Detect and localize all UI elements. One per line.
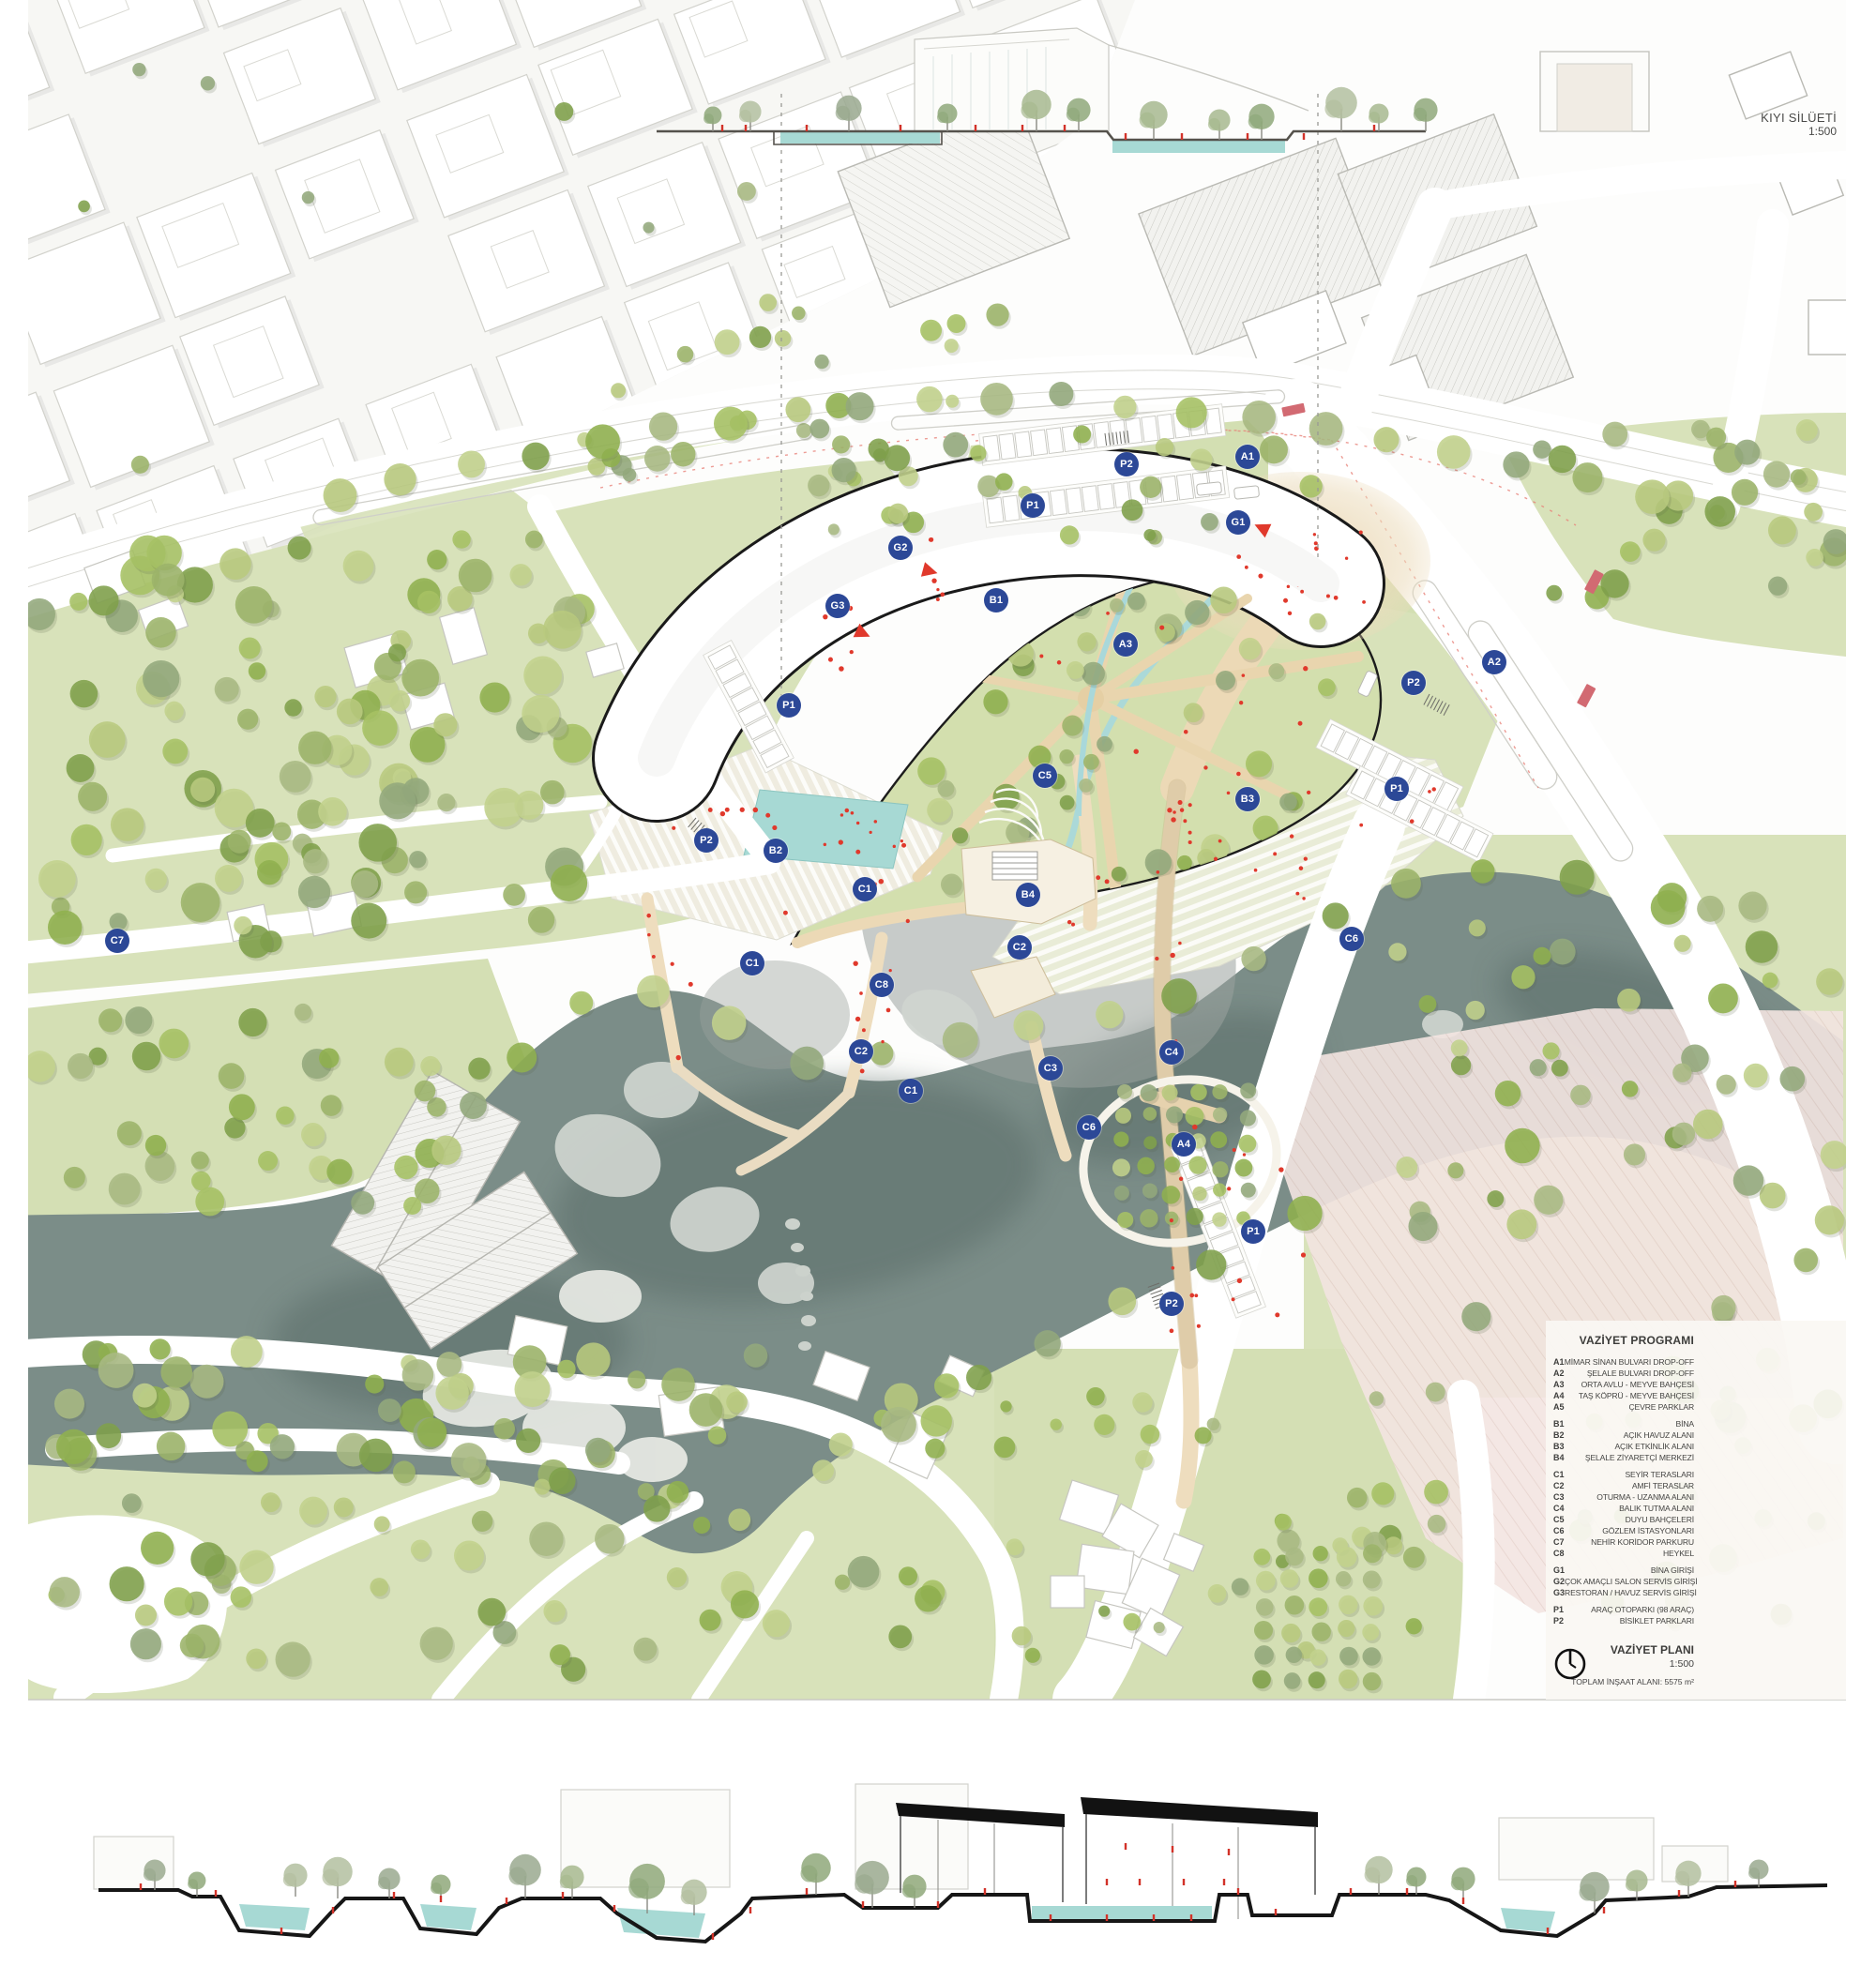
legend-row: C1SEYİR TERASLARI [1553,1470,1694,1481]
legend-code: A2 [1553,1369,1576,1378]
plan-marker: C4 [1159,1040,1184,1065]
legend-code: A4 [1553,1391,1576,1400]
plan-marker: C2 [849,1039,873,1064]
north-arrow-icon [1553,1647,1587,1681]
legend-label: ŞELALE BULVARI DROP-OFF [1576,1369,1694,1378]
plan-marker: C6 [1339,927,1364,951]
legend-label: TAŞ KÖPRÜ - MEYVE BAHÇESİ [1576,1391,1694,1400]
legend-row: C7NEHİR KORİDOR PARKURU [1553,1537,1694,1549]
legend-row: A3ORTA AVLU - MEYVE BAHÇESİ [1553,1380,1694,1391]
legend-label: OTURMA - UZANMA ALANI [1576,1492,1694,1502]
legend-row: A1MİMAR SİNAN BULVARI DROP-OFF [1553,1357,1694,1369]
plan-marker: P1 [1384,777,1409,801]
plan-marker: B4 [1016,883,1040,907]
legend-label: SEYİR TERASLARI [1576,1470,1694,1479]
legend-row: B3AÇIK ETKİNLİK ALANI [1553,1442,1694,1453]
legend-code: B3 [1553,1442,1576,1451]
plan-marker: C1 [853,877,877,901]
plan-marker: G3 [825,594,850,618]
legend-label: ŞELALE ZİYARETÇİ MERKEZİ [1576,1453,1694,1462]
plan-marker: B1 [984,588,1008,612]
legend-label: BİNA GİRİŞİ [1576,1565,1694,1575]
legend-label: GÖZLEM İSTASYONLARI [1576,1526,1694,1535]
legend-code: C6 [1553,1526,1576,1535]
plan-marker: A3 [1113,632,1138,657]
plan-marker: G1 [1226,510,1250,535]
legend-code: G3 [1553,1588,1565,1597]
legend-code: P1 [1553,1605,1576,1614]
legend-row: C3OTURMA - UZANMA ALANI [1553,1492,1694,1504]
plan-marker: G2 [888,536,913,560]
legend-code: C2 [1553,1481,1576,1490]
legend-label: BİNA [1576,1419,1694,1429]
legend-label: NEHİR KORİDOR PARKURU [1576,1537,1694,1547]
legend-code: C1 [1553,1470,1576,1479]
legend-row: C2AMFİ TERASLAR [1553,1481,1694,1492]
plan-marker: C2 [1007,935,1032,960]
legend-row: G3RESTORAN / HAVUZ SERVİS GİRİŞİ [1553,1588,1694,1599]
legend-label: MİMAR SİNAN BULVARI DROP-OFF [1565,1357,1694,1367]
plan-marker: P2 [1114,452,1139,476]
legend-code: A3 [1553,1380,1576,1389]
legend-row: B1BİNA [1553,1419,1694,1430]
legend-label: BİSİKLET PARKLARI [1576,1616,1694,1626]
legend-code: C7 [1553,1537,1576,1547]
legend-code: C4 [1553,1504,1576,1513]
legend-row: P2BİSİKLET PARKLARI [1553,1616,1694,1627]
legend-row: P1ARAÇ OTOPARKI (98 ARAÇ) [1553,1605,1694,1616]
legend-row: C4BALIK TUTMA ALANI [1553,1504,1694,1515]
plan-marker: P1 [1021,493,1045,518]
section-scale: 1:500 [1761,125,1837,139]
legend-row: G1BİNA GİRİŞİ [1553,1565,1694,1577]
plan-marker: B2 [764,839,788,863]
legend-row: C6GÖZLEM İSTASYONLARI [1553,1526,1694,1537]
plan-marker: C5 [1033,764,1057,788]
legend-code: G1 [1553,1565,1576,1575]
legend-label: RESTORAN / HAVUZ SERVİS GİRİŞİ [1565,1588,1697,1597]
legend-label: BALIK TUTMA ALANI [1576,1504,1694,1513]
plan-marker: P2 [1401,671,1426,695]
plan-marker: P1 [1241,1219,1265,1244]
legend-code: B1 [1553,1419,1576,1429]
legend-row: C8HEYKEL [1553,1549,1694,1560]
legend-title: VAZİYET PROGRAMI [1553,1334,1694,1347]
legend-row: B2AÇIK HAVUZ ALANI [1553,1430,1694,1442]
plan-marker: A2 [1482,650,1506,674]
legend-code: B4 [1553,1453,1576,1462]
legend-row: B4ŞELALE ZİYARETÇİ MERKEZİ [1553,1453,1694,1464]
legend-code: P2 [1553,1616,1576,1626]
legend-label: AMFİ TERASLAR [1576,1481,1694,1490]
plan-marker: B3 [1235,787,1260,811]
plan-marker: C1 [899,1079,923,1103]
plan-marker: A4 [1172,1132,1196,1157]
legend-label: DUYU BAHÇELERİ [1576,1515,1694,1524]
legend-label: ÇOK AMAÇLI SALON SERVİS GİRİŞİ [1565,1577,1697,1586]
section-title-block: KIYI SİLÜETİ 1:500 [1761,111,1837,139]
legend-code: A5 [1553,1402,1576,1412]
plan-marker: C7 [105,929,129,953]
plan-marker: P2 [694,828,719,853]
legend-code: G2 [1553,1577,1565,1586]
legend-code: C8 [1553,1549,1576,1558]
legend-code: B2 [1553,1430,1576,1440]
legend-row: A2ŞELALE BULVARI DROP-OFF [1553,1369,1694,1380]
legend-label: AÇIK ETKİNLİK ALANI [1576,1442,1694,1451]
legend-row: A5ÇEVRE PARKLAR [1553,1402,1694,1414]
section-title: KIYI SİLÜETİ [1761,111,1837,125]
legend-label: ÇEVRE PARKLAR [1576,1402,1694,1412]
legend-row: G2ÇOK AMAÇLI SALON SERVİS GİRİŞİ [1553,1577,1694,1588]
legend-row: C5DUYU BAHÇELERİ [1553,1515,1694,1526]
plan-marker: A1 [1235,445,1260,469]
plan-marker: C3 [1038,1056,1063,1081]
legend-label: HEYKEL [1576,1549,1694,1558]
legend-label: ARAÇ OTOPARKI (98 ARAÇ) [1576,1605,1694,1614]
plan-marker: P1 [777,693,801,718]
plan-marker: C6 [1077,1115,1101,1140]
legend-code: C5 [1553,1515,1576,1524]
legend-panel: VAZİYET PROGRAMI A1MİMAR SİNAN BULVARI D… [1546,1321,1846,1700]
plan-marker: P2 [1159,1292,1184,1316]
legend-code: C3 [1553,1492,1576,1502]
legend-groups: A1MİMAR SİNAN BULVARI DROP-OFFA2ŞELALE B… [1553,1357,1694,1627]
legend-code: A1 [1553,1357,1565,1367]
legend-label: ORTA AVLU - MEYVE BAHÇESİ [1576,1380,1694,1389]
legend-label: AÇIK HAVUZ ALANI [1576,1430,1694,1440]
plan-marker: C8 [870,973,894,997]
site-plan-board: KIYI SİLÜETİ 1:500 A1G1P2P1G2G3B1A3A2P2P… [0,0,1876,1966]
legend-row: A4TAŞ KÖPRÜ - MEYVE BAHÇESİ [1553,1391,1694,1402]
plan-marker: C1 [740,951,764,975]
